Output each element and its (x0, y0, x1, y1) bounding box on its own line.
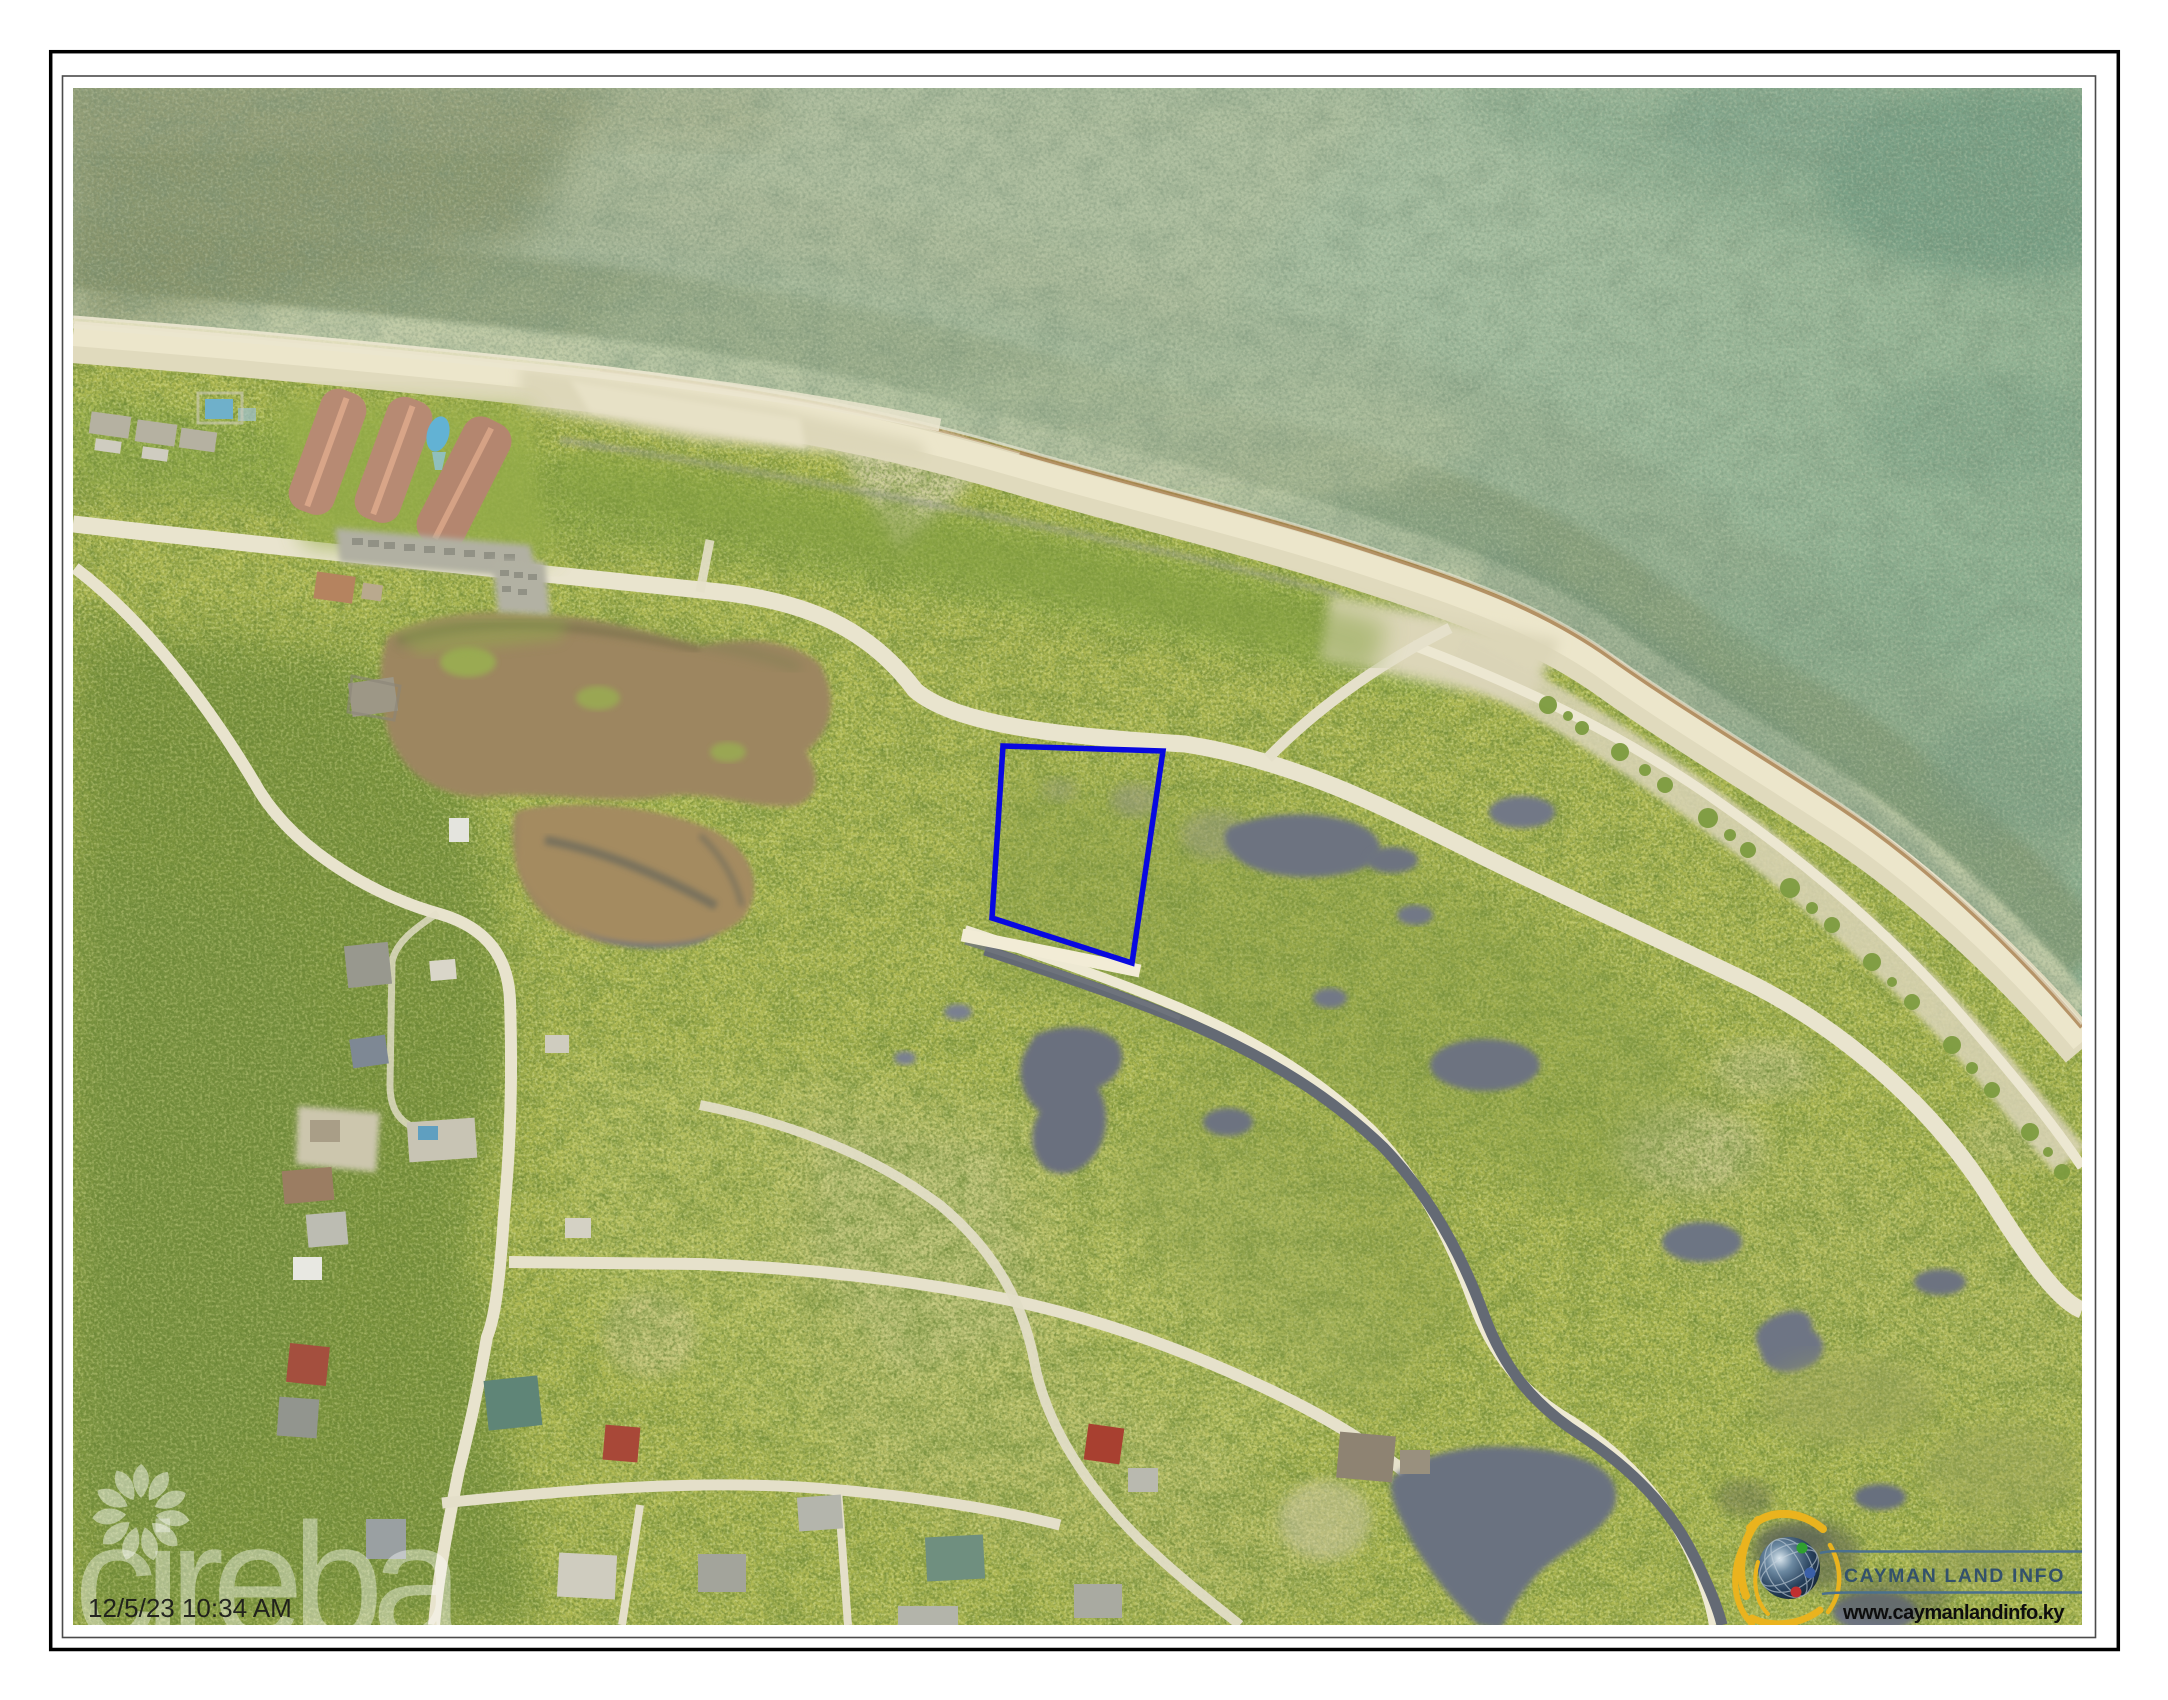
svg-text:12/5/23 10:34 AM: 12/5/23 10:34 AM (88, 1593, 292, 1623)
svg-text:CAYMAN LAND INFO: CAYMAN LAND INFO (1844, 1565, 2065, 1587)
svg-text:www.caymanlandinfo.ky: www.caymanlandinfo.ky (1842, 1602, 2065, 1624)
